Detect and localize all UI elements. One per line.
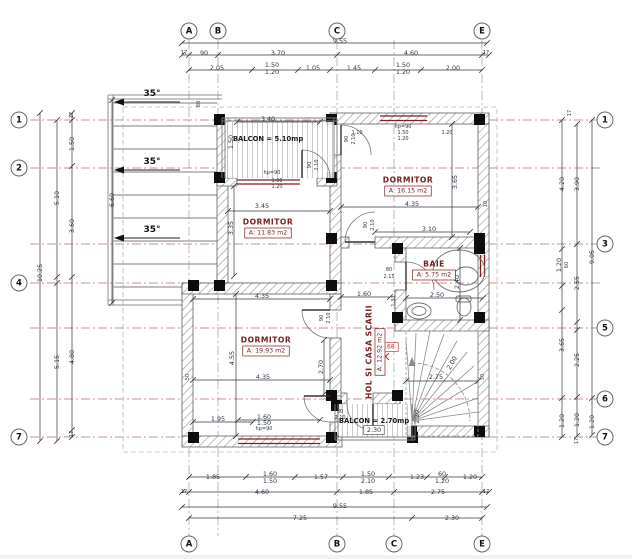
svg-text:7: 7 — [16, 433, 22, 443]
svg-text:3.40: 3.40 — [261, 115, 275, 123]
svg-text:1: 1 — [16, 116, 22, 126]
room-label: HOL SI CASA SCARIIA: 12.92 m2 — [365, 305, 386, 399]
dimension-label: 3.60 — [68, 219, 76, 233]
svg-text:B: B — [334, 540, 340, 550]
dimension-label: 3.70 — [271, 49, 285, 57]
svg-text:4.20: 4.20 — [558, 177, 566, 191]
room-area-label: A: 19.93 m2 — [247, 348, 286, 355]
dimension-label: 4.20 — [558, 177, 566, 191]
svg-text:90: 90 — [200, 49, 208, 57]
dimension-label: 1.45 — [347, 64, 361, 72]
column — [392, 243, 403, 254]
svg-text:9.05: 9.05 — [588, 250, 596, 264]
dimension-label: 17 — [181, 50, 187, 56]
svg-text:1.23: 1.23 — [410, 473, 424, 481]
dimension-label: 1.85 — [359, 488, 373, 496]
svg-text:4.60: 4.60 — [255, 488, 269, 496]
dimension-lines — [37, 40, 595, 521]
svg-text:2.00: 2.00 — [445, 355, 459, 371]
floor-plan-page: 35°35°35° — [0, 0, 632, 555]
dimension-label: 1.20 — [463, 473, 477, 481]
svg-text:2.10: 2.10 — [314, 159, 320, 170]
svg-text:1.20: 1.20 — [441, 130, 452, 136]
svg-text:6.60: 6.60 — [108, 193, 116, 207]
svg-text:1.10: 1.10 — [351, 130, 362, 136]
svg-text:2.00: 2.00 — [446, 64, 460, 72]
dimension-label: 17 — [181, 489, 187, 495]
dimension-label: 3.45 — [255, 202, 269, 210]
axis-bubble: 7 — [11, 429, 27, 445]
roof-slope-label: 35° — [143, 157, 160, 167]
axis-bubble: B — [210, 23, 226, 39]
svg-text:3.65: 3.65 — [558, 338, 566, 352]
svg-text:DORMITOR: DORMITOR — [241, 336, 291, 345]
dimension-label: 17 — [69, 112, 75, 118]
washbasin — [407, 303, 431, 319]
axis-bubble: 6 — [597, 391, 613, 407]
floor-plan-canvas: 35°35°35° — [0, 0, 632, 555]
dimension-label: 2.10 — [370, 219, 376, 230]
dimension-label: 1.20 — [396, 68, 410, 76]
svg-text:3.70: 3.70 — [271, 49, 285, 57]
axis-bubble: 2 — [11, 160, 27, 176]
svg-text:1.60: 1.60 — [357, 290, 371, 298]
room-label: BAIEA: 5.75 m2 — [413, 260, 456, 281]
dimension-label: 1.20 — [413, 410, 421, 424]
axis-bubble: 3 — [597, 236, 613, 252]
dimension-label: 2.05 — [210, 64, 224, 72]
room-area-label: A: 5.75 m2 — [417, 272, 451, 279]
dimension-label: 2.15 — [383, 274, 394, 280]
column — [326, 280, 337, 291]
column — [474, 233, 485, 244]
svg-text:5.15: 5.15 — [53, 355, 61, 369]
svg-text:C: C — [334, 27, 340, 37]
dimension-label: 2.30 — [364, 426, 384, 435]
column — [214, 172, 225, 183]
svg-text:2.10: 2.10 — [326, 312, 332, 323]
dimension-label: 1.57 — [314, 473, 328, 481]
slope-arrow-icon — [114, 99, 124, 106]
dimension-label: 3.65 — [558, 338, 566, 352]
svg-text:80: 80 — [386, 267, 392, 273]
axis-bubble: B — [329, 536, 345, 552]
column — [214, 114, 225, 125]
balcony-label: BALCON = 5.10mp — [233, 135, 304, 143]
svg-text:17: 17 — [483, 489, 489, 495]
svg-text:1.85: 1.85 — [359, 488, 373, 496]
column — [214, 280, 225, 291]
dimension-label: 10 — [483, 201, 489, 207]
svg-text:1.20: 1.20 — [396, 68, 410, 76]
dimension-label: hp=90 — [256, 426, 273, 432]
dimension-label: 2.75 — [429, 373, 443, 381]
svg-text:hp=90: hp=90 — [256, 426, 273, 432]
svg-text:3.65: 3.65 — [451, 175, 459, 189]
dimension-label: 4.35 — [256, 373, 270, 381]
dimension-label: 4.35 — [255, 292, 269, 300]
svg-text:2.25: 2.25 — [573, 353, 581, 367]
dimension-label: 1.10 — [351, 130, 362, 136]
svg-text:1.05: 1.05 — [306, 64, 320, 72]
svg-text:C: C — [391, 540, 397, 550]
room-label: DORMITORA: 19.93 m2 — [241, 336, 291, 357]
column — [474, 426, 485, 437]
dimension-label: 2.10 — [361, 477, 375, 485]
dimension-label: 50 — [185, 374, 191, 380]
dimension-label: 2.10 — [326, 312, 332, 323]
svg-text:DORMITOR: DORMITOR — [383, 176, 433, 185]
svg-text:1.20: 1.20 — [558, 414, 566, 428]
dimension-label: 10.25 — [36, 264, 44, 282]
column — [474, 243, 485, 254]
svg-text:4: 4 — [16, 279, 22, 289]
svg-text:1.95: 1.95 — [211, 415, 225, 423]
svg-text:3.90: 3.90 — [573, 177, 581, 191]
dimension-label: 1.20 — [271, 184, 282, 190]
svg-text:4.35: 4.35 — [256, 373, 270, 381]
axis-bubble: A — [181, 23, 197, 39]
svg-text:17: 17 — [181, 50, 187, 56]
dimension-label: 1.50 — [263, 477, 277, 485]
dimension-label: 1.20 — [265, 68, 279, 76]
svg-text:3: 3 — [602, 240, 608, 250]
dimension-label: 1.20 — [441, 130, 452, 136]
roof-slope-label: 35° — [143, 89, 160, 99]
axis-bubble: 1 — [597, 112, 613, 128]
svg-text:2.75: 2.75 — [429, 373, 443, 381]
dimension-label: 4.60 — [404, 49, 418, 57]
room-area-label: A: 11.83 m2 — [249, 230, 288, 237]
dimension-label: 90 — [363, 222, 369, 228]
svg-text:B: B — [215, 27, 221, 37]
svg-text:3.60: 3.60 — [68, 219, 76, 233]
svg-text:2.55: 2.55 — [573, 276, 581, 290]
svg-text:1.50: 1.50 — [263, 477, 277, 485]
axis-bubble: 7 — [597, 429, 613, 445]
column — [392, 390, 403, 401]
dimension-label: 2.25 — [573, 353, 581, 367]
room-area-label: A: 12.92 m2 — [377, 333, 384, 372]
dimension-label: 90 — [319, 315, 325, 321]
svg-text:E: E — [479, 27, 485, 37]
dimension-label: 80 — [196, 101, 202, 107]
axis-bubble: E — [474, 23, 490, 39]
column — [326, 233, 337, 244]
dimension-label: 17 — [69, 431, 75, 437]
terrace-roof: 35°35°35° — [108, 89, 222, 305]
dimension-label: 2.10 — [314, 159, 320, 170]
svg-text:1.20: 1.20 — [555, 258, 563, 272]
svg-text:4.35: 4.35 — [405, 200, 419, 208]
svg-text:1.20: 1.20 — [413, 410, 421, 424]
column — [188, 280, 199, 291]
svg-text:4.55: 4.55 — [228, 351, 236, 365]
svg-text:5: 5 — [602, 324, 608, 334]
svg-text:1.85: 1.85 — [206, 473, 220, 481]
roof-slope-label: 35° — [143, 225, 160, 235]
dimension-label: 3.65 — [451, 175, 459, 189]
room-label: DORMITORA: 11.83 m2 — [243, 218, 293, 239]
svg-text:90: 90 — [307, 162, 313, 168]
dimension-label: 2.00 — [445, 355, 459, 371]
svg-text:1.20: 1.20 — [271, 184, 282, 190]
svg-text:2.10: 2.10 — [370, 219, 376, 230]
dimension-label: 2.50 — [430, 291, 444, 299]
svg-text:2.15: 2.15 — [383, 274, 394, 280]
svg-text:2: 2 — [16, 164, 22, 174]
dimension-label: 1.20 — [397, 136, 408, 142]
svg-text:10: 10 — [483, 201, 489, 207]
dimension-label: 4.55 — [228, 351, 236, 365]
annotations-layer: 9.5517903.704.60172.051.501.201.051.451.… — [36, 37, 596, 522]
svg-text:E: E — [479, 540, 485, 550]
toilet — [457, 298, 471, 316]
dimension-label: 1.05 — [306, 64, 320, 72]
svg-text:60: 60 — [564, 262, 570, 268]
dimension-label: 9.05 — [588, 250, 596, 264]
svg-text:hp=90: hp=90 — [264, 170, 281, 176]
axis-bubble: 5 — [597, 320, 613, 336]
svg-text:2.10: 2.10 — [361, 477, 375, 485]
svg-text:2.30: 2.30 — [445, 514, 459, 522]
svg-text:30: 30 — [480, 374, 486, 380]
svg-text:DORMITOR: DORMITOR — [243, 218, 293, 227]
dimension-label: 1.20 — [558, 414, 566, 428]
dimension-label: 3.40 — [261, 115, 275, 123]
svg-text:17: 17 — [567, 110, 573, 116]
dimension-label: 1.23 — [410, 473, 424, 481]
dimension-label: 90 — [200, 49, 208, 57]
column — [474, 312, 485, 323]
dimension-label: 5.15 — [53, 355, 61, 369]
svg-text:17: 17 — [574, 438, 580, 444]
dimension-label: 3.90 — [573, 177, 581, 191]
svg-text:1.33: 1.33 — [391, 295, 397, 306]
svg-text:1.20: 1.20 — [265, 68, 279, 76]
dimension-label: 60 — [564, 262, 570, 268]
column — [392, 312, 403, 323]
axis-bubble: C — [329, 23, 345, 39]
svg-text:1: 1 — [602, 116, 608, 126]
dimension-label: 2.30 — [445, 514, 459, 522]
dimension-label: 1.20 — [588, 415, 596, 429]
svg-text:17: 17 — [69, 431, 75, 437]
svg-text:HOL SI CASA SCARII: HOL SI CASA SCARII — [365, 305, 374, 399]
svg-text:1.20: 1.20 — [573, 413, 581, 427]
svg-text:1.57: 1.57 — [314, 473, 328, 481]
svg-text:4.35: 4.35 — [255, 292, 269, 300]
svg-text:3.45: 3.45 — [255, 202, 269, 210]
bathroom-fixtures — [407, 250, 485, 319]
svg-text:90: 90 — [319, 315, 325, 321]
dimension-label: 4.35 — [405, 200, 419, 208]
column — [188, 432, 199, 443]
svg-text:2.75: 2.75 — [431, 488, 445, 496]
dimension-label: 17 — [483, 50, 489, 56]
svg-text:17: 17 — [181, 489, 187, 495]
dimension-label: 80 — [386, 267, 392, 273]
room-area-label: A: 16.15 m2 — [389, 188, 428, 195]
dimension-label: 2.70 — [317, 360, 325, 374]
svg-text:BAIE: BAIE — [423, 260, 445, 269]
dimension-label: 4.80 — [68, 350, 76, 364]
dimension-label: 3.35 — [227, 221, 235, 235]
room-label: DORMITORA: 16.15 m2 — [383, 176, 433, 197]
dimension-label: 17 — [567, 110, 573, 116]
svg-text:1.20: 1.20 — [588, 415, 596, 429]
svg-text:90: 90 — [344, 136, 350, 142]
axis-bubble: C — [386, 536, 402, 552]
svg-text:7: 7 — [602, 433, 608, 443]
dimension-label: 17 — [574, 438, 580, 444]
svg-text:4.60: 4.60 — [404, 49, 418, 57]
dimension-label: 17 — [483, 489, 489, 495]
axis-bubble: E — [474, 536, 490, 552]
svg-text:90: 90 — [363, 222, 369, 228]
svg-text:1.45: 1.45 — [347, 64, 361, 72]
dimension-label: 3.10 — [422, 225, 436, 233]
svg-text:1.20: 1.20 — [397, 136, 408, 142]
svg-text:3.10: 3.10 — [422, 225, 436, 233]
svg-text:80: 80 — [196, 101, 202, 107]
dimension-label: 1.20 — [435, 477, 449, 485]
svg-text:A: A — [186, 540, 193, 550]
svg-text:17: 17 — [69, 112, 75, 118]
svg-text:3.35: 3.35 — [227, 221, 235, 235]
svg-text:10.25: 10.25 — [36, 264, 44, 282]
dimension-label: 1.50 — [68, 137, 76, 151]
svg-text:7.25: 7.25 — [293, 514, 307, 522]
dimension-label: 30 — [480, 374, 486, 380]
axis-bubble: 1 — [11, 112, 27, 128]
dimension-label: 1.33 — [391, 295, 397, 306]
svg-text:17: 17 — [483, 50, 489, 56]
dimension-label: 1.60 — [357, 290, 371, 298]
axis-bubble: A — [181, 536, 197, 552]
dimension-label: 4.60 — [255, 488, 269, 496]
svg-text:A: A — [186, 27, 193, 37]
column — [474, 114, 485, 125]
dimension-label: 1.20 — [573, 413, 581, 427]
axis-bubble: 4 — [11, 275, 27, 291]
dimension-label: 6.60 — [108, 193, 116, 207]
svg-text:5.10: 5.10 — [53, 191, 61, 205]
dimension-label: 9.55 — [333, 502, 347, 510]
svg-text:1.20: 1.20 — [463, 473, 477, 481]
svg-text:1.50: 1.50 — [68, 137, 76, 151]
dimension-label: 1.20 — [555, 258, 563, 272]
dimension-label: 2.55 — [573, 276, 581, 290]
balcony-label: BALCON = 2.70mp — [339, 417, 410, 425]
svg-text:2.50: 2.50 — [430, 291, 444, 299]
svg-text:1.20: 1.20 — [435, 477, 449, 485]
svg-text:9.55: 9.55 — [333, 502, 347, 510]
dimension-label: hp=90 — [264, 170, 281, 176]
dimension-label: 90 — [344, 136, 350, 142]
dimension-label: 2.00 — [446, 64, 460, 72]
svg-text:4.80: 4.80 — [68, 350, 76, 364]
svg-text:2.70: 2.70 — [317, 360, 325, 374]
dimension-label: 90 — [307, 162, 313, 168]
dimension-label: 5.10 — [53, 191, 61, 205]
dimension-label: 1.95 — [211, 415, 225, 423]
svg-text:6: 6 — [602, 395, 608, 405]
dimension-label: 7.25 — [293, 514, 307, 522]
svg-text:2.05: 2.05 — [210, 64, 224, 72]
dimension-label: 2.75 — [431, 488, 445, 496]
svg-text:50: 50 — [185, 374, 191, 380]
svg-text:2.30: 2.30 — [367, 426, 381, 434]
dimension-label: 1.85 — [206, 473, 220, 481]
